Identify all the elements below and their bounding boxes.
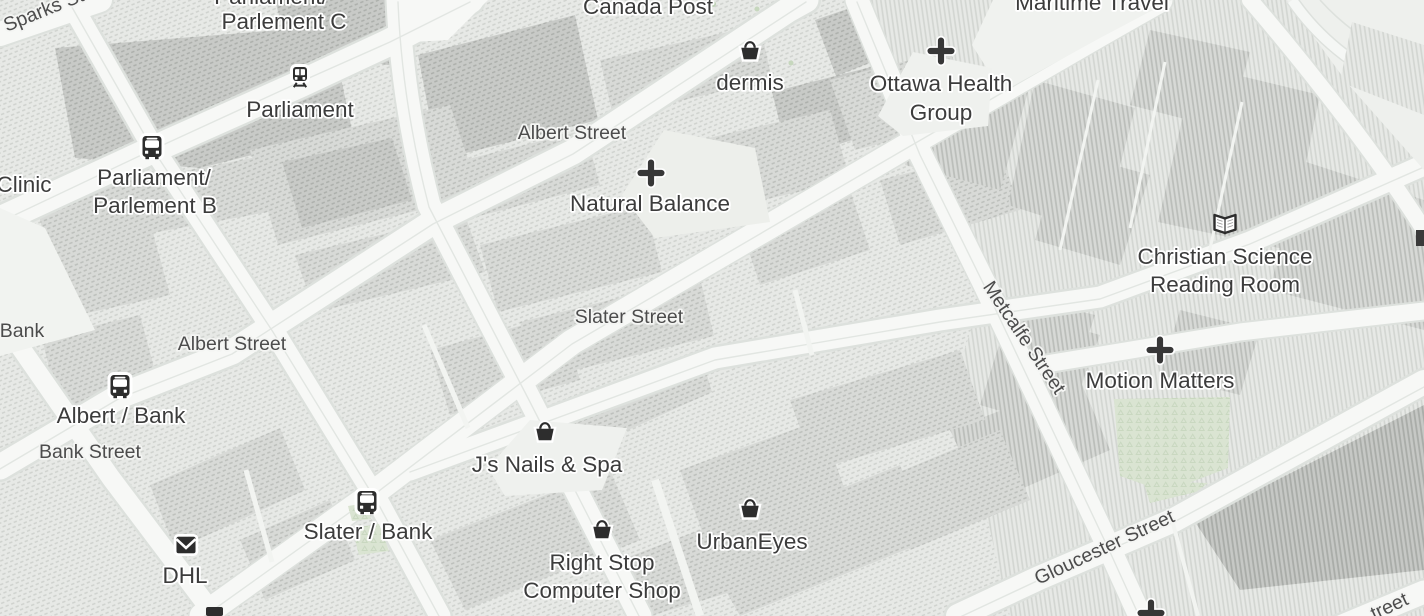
svg-text:Canada Post: Canada Post (583, 0, 714, 19)
svg-text:Motion Matters: Motion Matters (1086, 368, 1235, 393)
svg-text:Bank Street: Bank Street (39, 441, 141, 463)
svg-text:Christian Science: Christian Science (1137, 244, 1312, 269)
svg-text:DHL: DHL (162, 563, 207, 588)
svg-text:Albert Street: Albert Street (178, 333, 287, 355)
svg-text:Group: Group (910, 100, 973, 125)
svg-text:Parlement B: Parlement B (93, 193, 217, 218)
svg-text:Computer Shop: Computer Shop (523, 578, 681, 603)
svg-text:Maritime Travel: Maritime Travel (1015, 0, 1169, 15)
svg-text:Right Stop: Right Stop (549, 550, 654, 575)
svg-text:Natural Balance: Natural Balance (570, 191, 730, 216)
svg-text:Slater / Bank: Slater / Bank (304, 519, 434, 544)
svg-text:Bank: Bank (0, 320, 44, 342)
svg-text:UrbanEyes: UrbanEyes (696, 529, 807, 554)
svg-text:dermis: dermis (716, 70, 784, 95)
svg-text:Parliament: Parliament (246, 97, 354, 122)
svg-text:Reading Room: Reading Room (1150, 272, 1300, 297)
svg-text:J's Nails & Spa: J's Nails & Spa (472, 452, 623, 477)
svg-text:Parlement C: Parlement C (221, 9, 346, 34)
svg-text:Parliament/: Parliament/ (97, 165, 212, 190)
svg-text:Clinic: Clinic (0, 172, 52, 197)
svg-text:Albert Street: Albert Street (518, 122, 627, 144)
svg-text:Slater Street: Slater Street (575, 306, 684, 328)
svg-text:Parliament/: Parliament/ (214, 0, 329, 9)
svg-text:Ottawa Health: Ottawa Health (870, 71, 1013, 96)
svg-text:Albert / Bank: Albert / Bank (57, 403, 187, 428)
